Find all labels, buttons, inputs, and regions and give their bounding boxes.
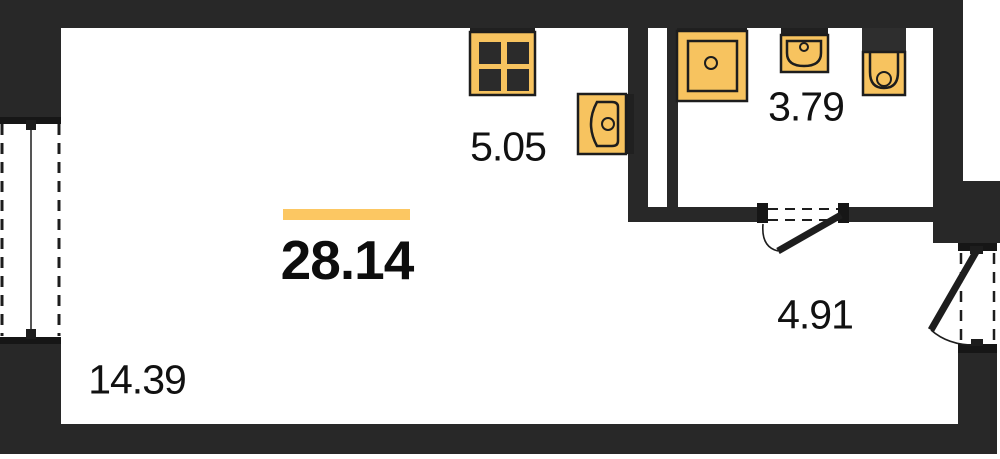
stove-burner bbox=[507, 42, 529, 64]
balcony-door-latch bbox=[971, 339, 983, 346]
wall-bottom bbox=[0, 424, 997, 454]
wall-left-upper bbox=[0, 28, 61, 118]
left-window-mullion-cap-bottom bbox=[26, 329, 36, 339]
left-window-mullion-cap-top bbox=[26, 120, 36, 130]
stove-burner bbox=[507, 69, 529, 91]
washbasin-icon bbox=[781, 28, 828, 72]
kitchen-sink-icon bbox=[578, 94, 634, 154]
wall-right-block bbox=[933, 181, 1000, 243]
toilet-icon bbox=[862, 28, 906, 95]
total-area-label: 28.14 bbox=[281, 228, 414, 292]
balcony-door-leaf bbox=[931, 252, 976, 330]
kitchen-sink-drain bbox=[602, 118, 614, 130]
wall-left-lower bbox=[0, 343, 61, 425]
bathroom-door-arc bbox=[763, 224, 778, 251]
area-label-hallway: 4.91 bbox=[777, 292, 853, 339]
bathroom-door-swing bbox=[763, 209, 841, 251]
area-label-kitchen: 5.05 bbox=[470, 124, 546, 171]
area-label-living: 14.39 bbox=[88, 357, 186, 404]
area-highlight-bar bbox=[283, 209, 410, 220]
left-window bbox=[2, 120, 59, 339]
stove-burner bbox=[479, 69, 501, 91]
wall-bathroom-bottom-right bbox=[848, 207, 933, 222]
stove-burner bbox=[479, 42, 501, 64]
wall-right-upper bbox=[933, 28, 963, 181]
stove-icon bbox=[470, 28, 535, 95]
floor-plan: 28.14 14.39 5.05 3.79 4.91 bbox=[0, 0, 1000, 459]
shower-tray-icon bbox=[677, 28, 747, 101]
wall-bathroom-bottom-left bbox=[648, 207, 758, 222]
balcony-door-swing bbox=[931, 246, 994, 346]
toilet-tank bbox=[862, 28, 906, 53]
wall-top bbox=[0, 0, 963, 28]
bathroom-door-post-left bbox=[757, 203, 768, 223]
wall-right-lower bbox=[958, 353, 997, 424]
area-label-bathroom: 3.79 bbox=[768, 84, 844, 131]
